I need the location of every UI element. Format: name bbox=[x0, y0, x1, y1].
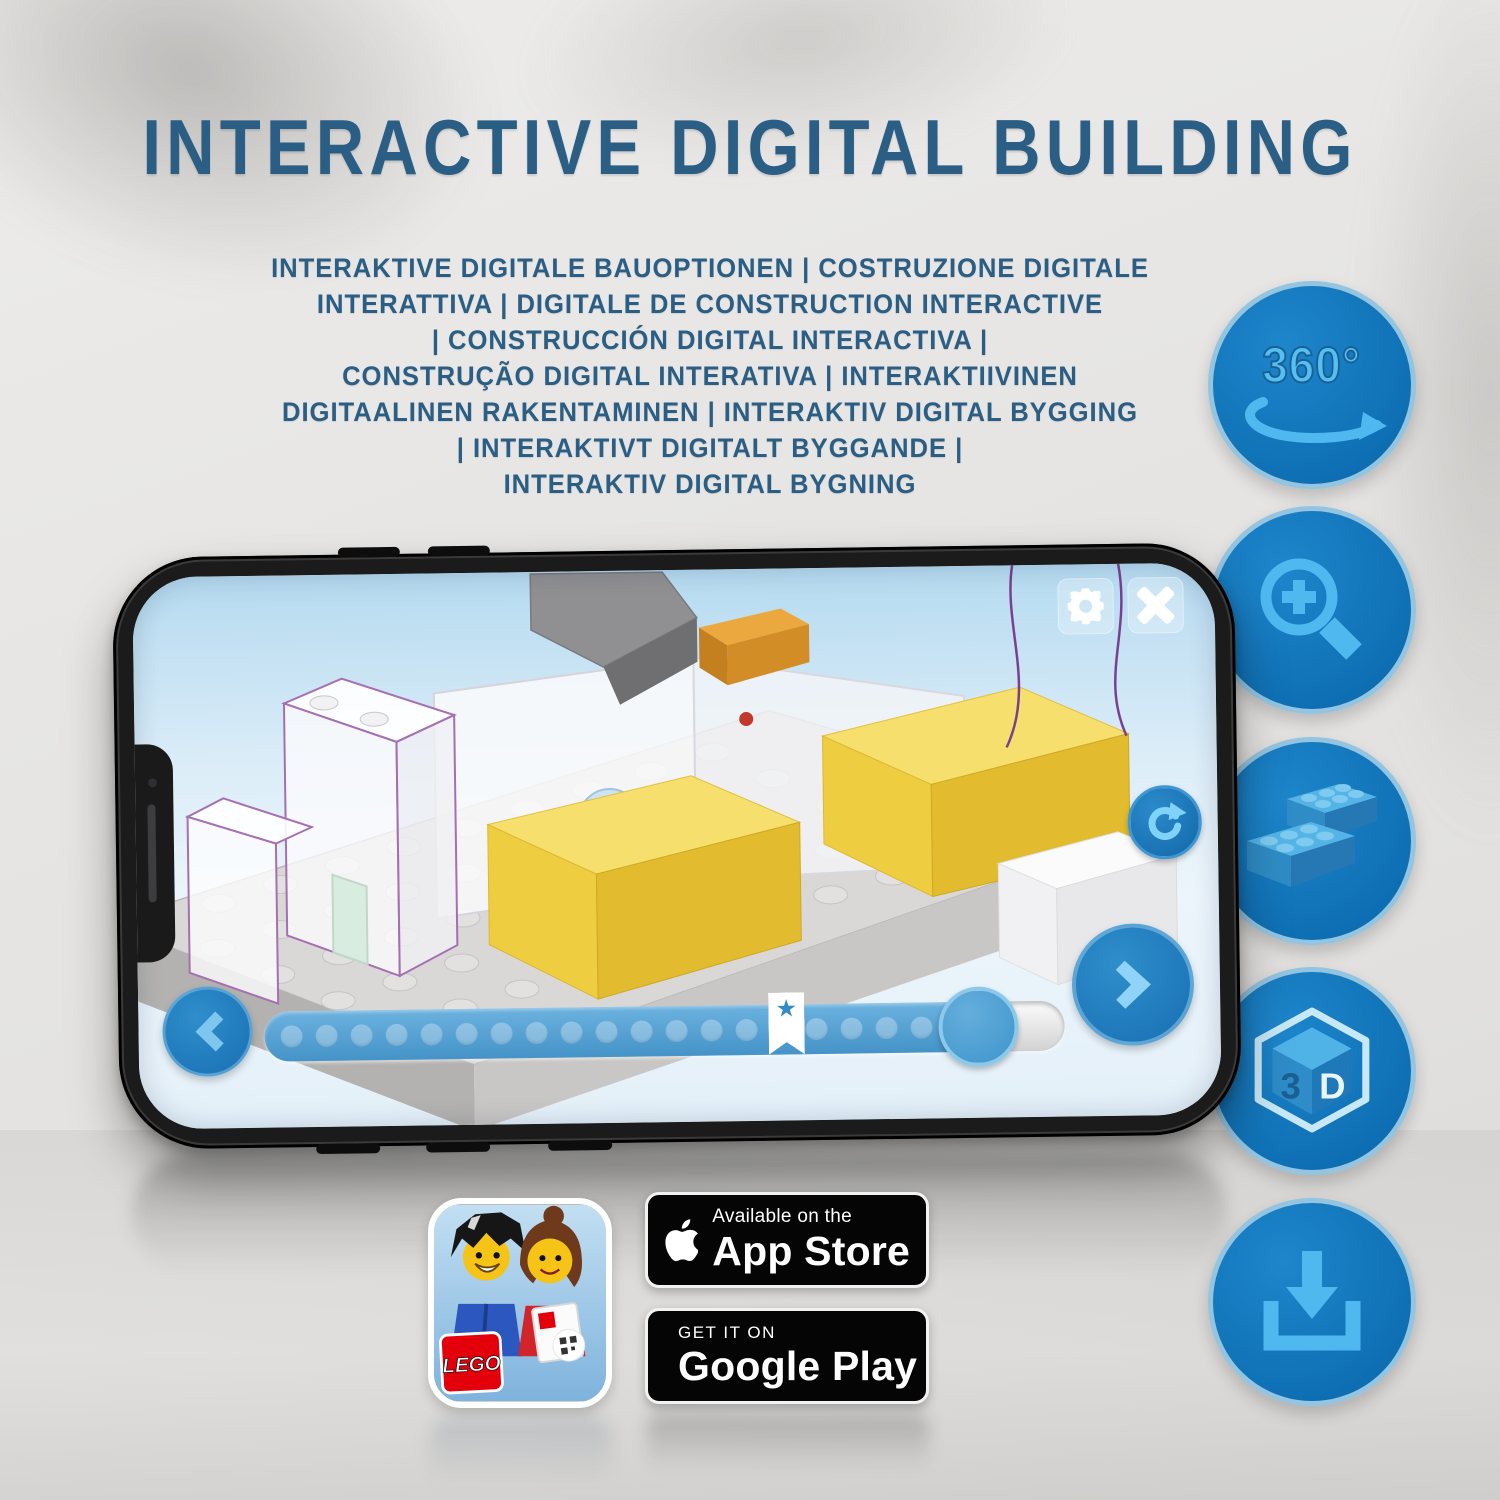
chevron-left-icon bbox=[181, 1003, 234, 1060]
side-button bbox=[548, 1140, 612, 1151]
download-icon bbox=[1247, 1237, 1377, 1367]
cube-face-d: D bbox=[1319, 1065, 1345, 1106]
feature-circle-zoom bbox=[1208, 506, 1416, 714]
earpiece-speaker bbox=[147, 804, 156, 902]
subtitle-line: | CONSTRUCCIÓN DIGITAL INTERACTIVA | bbox=[230, 322, 1190, 358]
feature-circle-bricks bbox=[1208, 737, 1416, 945]
close-button[interactable] bbox=[1127, 577, 1184, 634]
phone-notch bbox=[133, 744, 176, 963]
subtitle-line: CONSTRUÇÃO DIGITAL INTERATIVA | INTERAKT… bbox=[230, 358, 1190, 394]
apple-icon bbox=[664, 1211, 698, 1269]
lego-app-artwork: LEGO bbox=[434, 1204, 606, 1402]
marketing-image: INTERACTIVE DIGITAL BUILDING INTERAKTIVE… bbox=[0, 0, 1500, 1500]
subtitle-line: INTERAKTIV DIGITAL BYGNING bbox=[230, 466, 1190, 502]
app-store-badge[interactable]: Available on the App Store bbox=[645, 1192, 929, 1288]
lego-app-icon-reflection bbox=[430, 1418, 612, 1482]
page-title: INTERACTIVE DIGITAL BUILDING bbox=[105, 102, 1395, 193]
subtitle-line: INTERATTIVA | DIGITALE DE CONSTRUCTION I… bbox=[230, 286, 1190, 322]
side-button bbox=[426, 1142, 490, 1153]
rotation-arrow-icon bbox=[1237, 394, 1387, 448]
feature-circle-download bbox=[1208, 1198, 1416, 1406]
settings-button[interactable] bbox=[1057, 578, 1114, 635]
gear-icon bbox=[1065, 586, 1106, 627]
lego-bricks-icon bbox=[1239, 775, 1385, 907]
subtitle-line: INTERAKTIVE DIGITALE BAUOPTIONEN | COSTR… bbox=[230, 250, 1190, 286]
close-icon bbox=[1135, 585, 1176, 626]
volume-button bbox=[338, 547, 400, 558]
multilingual-subtitle: INTERAKTIVE DIGITALE BAUOPTIONEN | COSTR… bbox=[230, 250, 1190, 502]
3d-cube-icon: 3 D bbox=[1246, 1005, 1378, 1137]
rotate-clockwise-icon bbox=[1142, 800, 1187, 845]
lego-logo-text: LEGO bbox=[442, 1352, 501, 1378]
google-play-tagline: GET IT ON bbox=[678, 1324, 917, 1342]
smartphone: ★ bbox=[112, 542, 1242, 1150]
subtitle-line: | INTERAKTIVT DIGITALT BYGGANDE | bbox=[230, 430, 1190, 466]
cube-face-3: 3 bbox=[1281, 1065, 1301, 1106]
progress-fill bbox=[264, 1002, 977, 1062]
feature-circle-360: 360° bbox=[1208, 281, 1416, 489]
360-rotation-icon: 360° bbox=[1263, 336, 1362, 394]
volume-button bbox=[428, 546, 490, 557]
chevron-right-icon bbox=[1101, 950, 1166, 1019]
google-play-badge[interactable]: GET IT ON Google Play bbox=[645, 1308, 929, 1404]
progress-dots bbox=[264, 1002, 977, 1062]
app-screen: ★ bbox=[132, 562, 1222, 1129]
badge-reflection bbox=[647, 1414, 929, 1470]
subtitle-line: DIGITAALINEN RAKENTAMINEN | INTERAKTIV D… bbox=[230, 394, 1190, 430]
google-play-name: Google Play bbox=[678, 1345, 917, 1388]
app-store-name: App Store bbox=[712, 1230, 910, 1273]
front-camera bbox=[148, 778, 157, 787]
app-store-tagline: Available on the bbox=[712, 1207, 910, 1227]
side-button bbox=[316, 1143, 380, 1154]
lego-app-icon[interactable]: LEGO bbox=[428, 1198, 612, 1408]
zoom-magnifier-icon bbox=[1247, 545, 1377, 675]
